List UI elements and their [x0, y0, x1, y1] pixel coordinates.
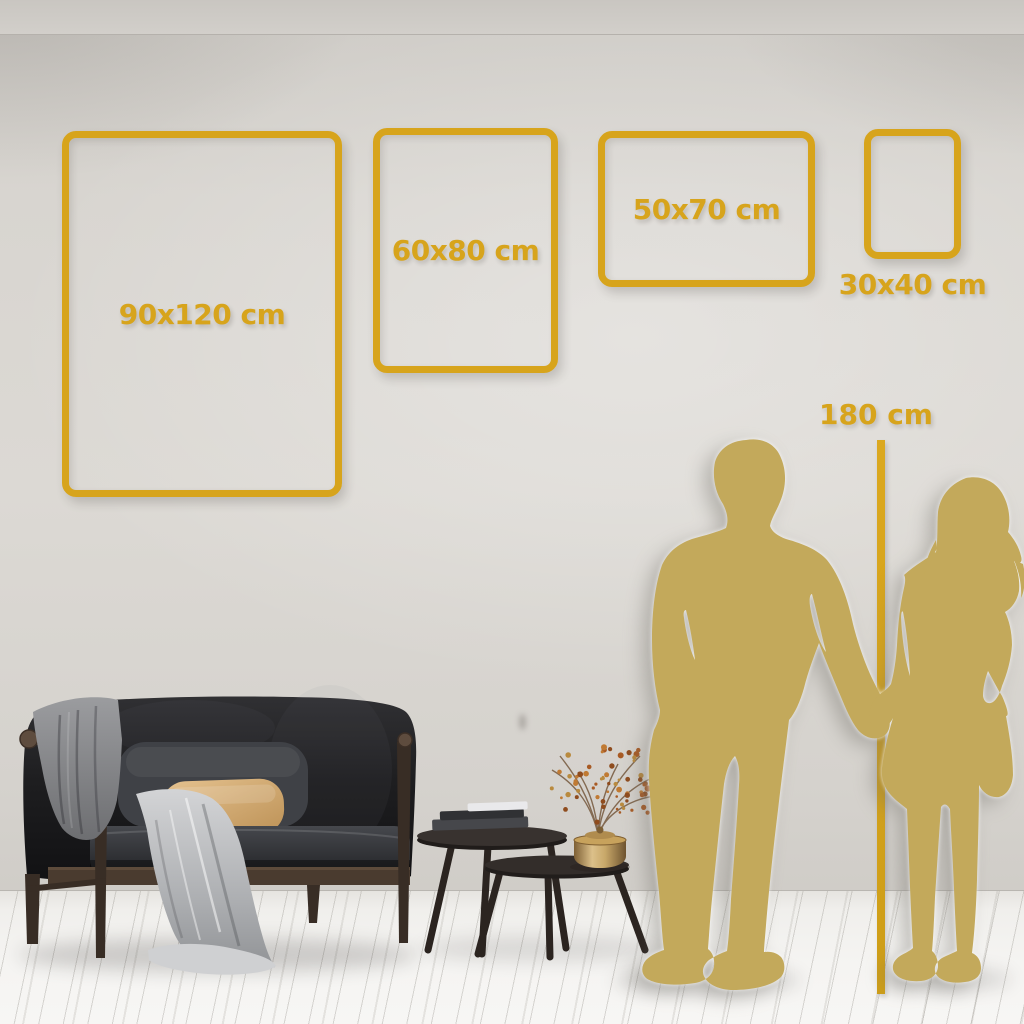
man-silhouette: [642, 439, 890, 990]
woman-silhouette: [869, 477, 1022, 982]
wall-art-size-guide-scene: 90x120 cm 60x80 cm 50x70 cm 30x40 cm 180…: [0, 0, 1024, 1024]
couple-silhouettes: [0, 0, 1024, 1024]
